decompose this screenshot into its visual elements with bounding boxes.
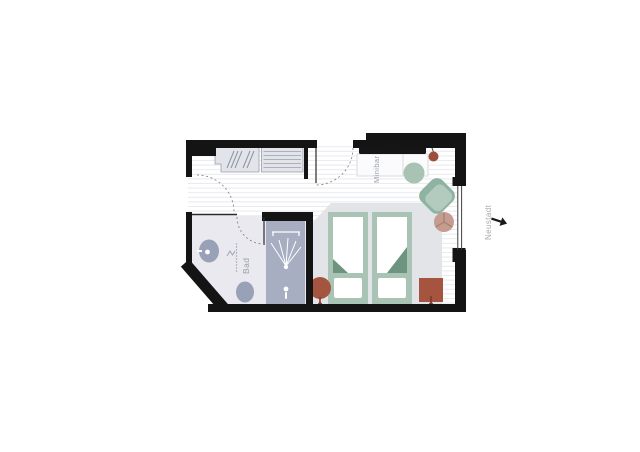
- wall-entry-chunk: [189, 140, 216, 156]
- bathroom-label: Bad: [241, 258, 251, 274]
- wall-top-right: [353, 140, 462, 148]
- wall-left-upper: [186, 140, 192, 177]
- wall-top-step: [366, 133, 462, 141]
- wall-bottom: [208, 304, 466, 312]
- side-table-round: [404, 163, 425, 184]
- minibar-label: Minibar: [372, 156, 381, 183]
- window-cap-top: [453, 177, 466, 186]
- wardrobe-hanging-section: [215, 147, 259, 172]
- bathroom-wall-right: [306, 212, 313, 308]
- bathroom-wall-top-thick: [262, 212, 308, 221]
- toilet: [236, 282, 254, 303]
- tv-screen: [359, 147, 426, 154]
- pendant-lamp-icon: [429, 152, 439, 162]
- bed-right-pillow: [378, 278, 406, 298]
- wardrobe-niche-wall: [304, 146, 308, 179]
- district-label: Neustadt: [484, 204, 493, 240]
- basin-tap-icon: [197, 250, 202, 252]
- floor-plan-canvas: Bad Minibar Neustadt: [0, 0, 640, 452]
- window: [458, 186, 462, 250]
- wall-left-lower: [186, 212, 192, 266]
- shower-head-icon: [284, 265, 288, 269]
- wall-right-lower: [455, 250, 466, 312]
- bed-left-pillow: [334, 278, 362, 298]
- floor-plan: Bad Minibar Neustadt: [0, 0, 640, 452]
- basin-drain-icon: [205, 250, 210, 255]
